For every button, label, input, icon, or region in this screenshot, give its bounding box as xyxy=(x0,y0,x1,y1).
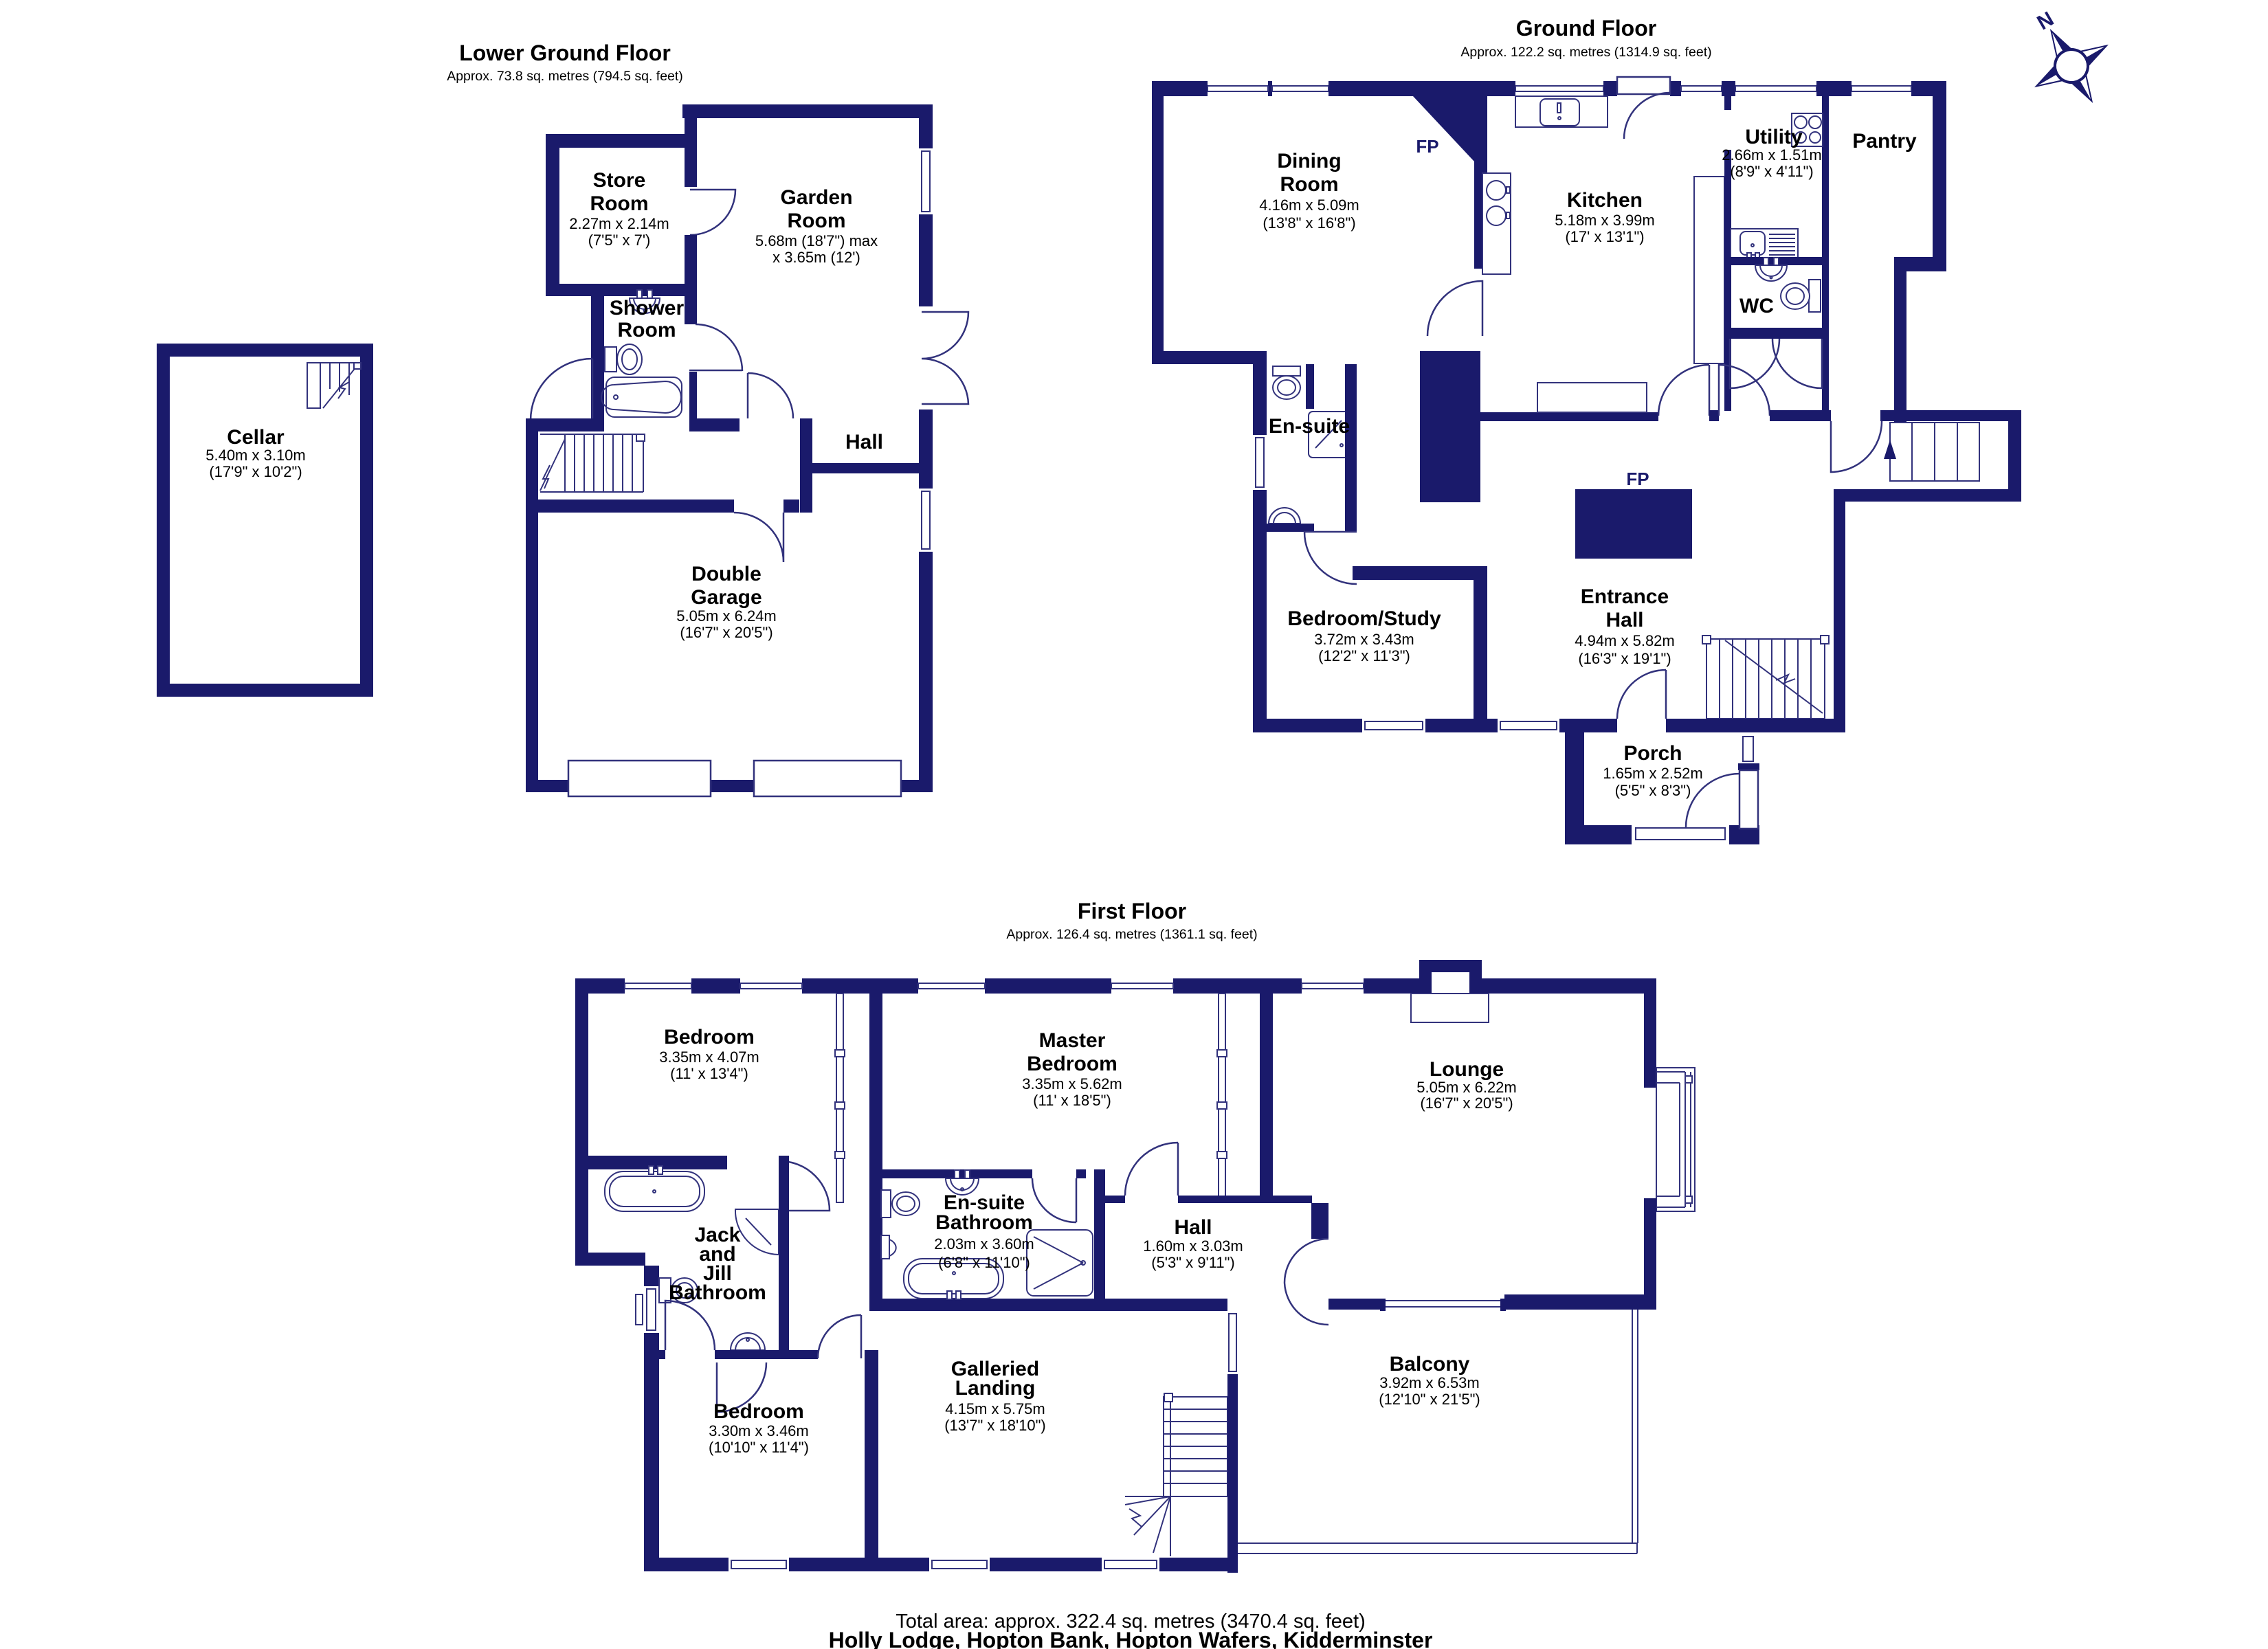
svg-text:Balcony: Balcony xyxy=(1390,1353,1470,1376)
svg-text:(13'8" x 16'8"): (13'8" x 16'8") xyxy=(1263,214,1355,232)
svg-text:5.40m x 3.10m: 5.40m x 3.10m xyxy=(205,447,306,464)
svg-text:5.68m (18'7") max: 5.68m (18'7") max xyxy=(755,232,878,249)
svg-text:2.66m x 1.51m: 2.66m x 1.51m xyxy=(1722,146,1822,164)
svg-text:Cellar: Cellar xyxy=(227,426,285,449)
svg-text:Bathroom: Bathroom xyxy=(669,1281,766,1304)
svg-text:4.16m x 5.09m: 4.16m x 5.09m xyxy=(1259,197,1359,214)
svg-text:5.05m x 6.22m: 5.05m x 6.22m xyxy=(1416,1079,1517,1096)
svg-text:Double: Double xyxy=(691,563,761,585)
svg-text:(12'10" x 21'5"): (12'10" x 21'5") xyxy=(1379,1391,1480,1408)
svg-text:Shower: Shower xyxy=(610,297,685,319)
svg-text:3.30m x 3.46m: 3.30m x 3.46m xyxy=(709,1422,809,1439)
svg-text:2.27m x 2.14m: 2.27m x 2.14m xyxy=(569,215,669,232)
svg-text:4.15m x 5.75m: 4.15m x 5.75m xyxy=(945,1400,1045,1417)
svg-text:(6'8" x 11'10"): (6'8" x 11'10") xyxy=(938,1254,1030,1271)
svg-text:Room: Room xyxy=(618,319,676,341)
svg-text:Landing: Landing xyxy=(955,1377,1036,1400)
svg-text:3.92m x 6.53m: 3.92m x 6.53m xyxy=(1379,1374,1480,1391)
svg-text:(17' x 13'1"): (17' x 13'1") xyxy=(1565,228,1644,245)
svg-text:1.60m x 3.03m: 1.60m x 3.03m xyxy=(1143,1237,1243,1255)
svg-text:(5'3" x 9'11"): (5'3" x 9'11") xyxy=(1151,1254,1234,1271)
svg-text:FP: FP xyxy=(1416,136,1438,157)
svg-text:3.35m x 5.62m: 3.35m x 5.62m xyxy=(1022,1075,1122,1092)
svg-text:2.03m x 3.60m: 2.03m x 3.60m xyxy=(934,1235,1034,1253)
svg-text:Ground Floor: Ground Floor xyxy=(1516,16,1656,41)
svg-text:Dining: Dining xyxy=(1277,150,1341,172)
svg-text:En-suite: En-suite xyxy=(1269,415,1350,438)
svg-text:Room: Room xyxy=(1280,173,1339,196)
svg-text:FP: FP xyxy=(1626,469,1649,489)
svg-text:Room: Room xyxy=(590,192,649,215)
svg-text:Garage: Garage xyxy=(691,586,761,609)
svg-text:3.35m x 4.07m: 3.35m x 4.07m xyxy=(659,1048,759,1066)
svg-text:5.05m x 6.24m: 5.05m x 6.24m xyxy=(676,607,777,625)
svg-text:(7'5" x 7'): (7'5" x 7') xyxy=(588,232,651,249)
svg-text:Porch: Porch xyxy=(1623,742,1682,765)
svg-text:Approx. 122.2 sq. metres (1314: Approx. 122.2 sq. metres (1314.9 sq. fee… xyxy=(1460,45,1711,60)
svg-text:(17'9" x 10'2"): (17'9" x 10'2") xyxy=(209,463,302,480)
svg-text:(8'9" x 4'11"): (8'9" x 4'11") xyxy=(1730,163,1813,180)
svg-text:Hall: Hall xyxy=(1174,1216,1212,1239)
svg-text:Approx. 126.4 sq. metres (1361: Approx. 126.4 sq. metres (1361.1 sq. fee… xyxy=(1006,927,1257,942)
svg-text:Kitchen: Kitchen xyxy=(1567,189,1643,212)
svg-text:4.94m x 5.82m: 4.94m x 5.82m xyxy=(1575,632,1675,649)
svg-text:Bedroom: Bedroom xyxy=(713,1400,804,1423)
svg-text:(11' x 13'4"): (11' x 13'4") xyxy=(670,1065,748,1082)
svg-text:Garden: Garden xyxy=(780,186,852,209)
svg-text:First Floor: First Floor xyxy=(1078,899,1186,923)
svg-text:Entrance: Entrance xyxy=(1581,585,1669,608)
svg-text:Pantry: Pantry xyxy=(1852,130,1917,153)
svg-text:Approx. 73.8 sq. metres (794.5: Approx. 73.8 sq. metres (794.5 sq. feet) xyxy=(447,69,683,84)
svg-text:(5'5" x 8'3"): (5'5" x 8'3") xyxy=(1615,782,1691,799)
svg-text:Bathroom: Bathroom xyxy=(935,1211,1033,1234)
svg-text:3.72m x 3.43m: 3.72m x 3.43m xyxy=(1314,631,1414,648)
svg-text:Bedroom/Study: Bedroom/Study xyxy=(1287,607,1441,630)
svg-text:x 3.65m (12'): x 3.65m (12') xyxy=(772,249,860,266)
svg-text:(11' x 18'5"): (11' x 18'5") xyxy=(1033,1092,1111,1109)
svg-text:Hall: Hall xyxy=(845,431,883,453)
svg-text:Master: Master xyxy=(1039,1029,1106,1052)
svg-text:Room: Room xyxy=(788,210,846,232)
svg-text:(13'7" x 18'10"): (13'7" x 18'10") xyxy=(944,1417,1046,1434)
svg-text:Lounge: Lounge xyxy=(1430,1058,1504,1081)
svg-text:(12'2" x 11'3"): (12'2" x 11'3") xyxy=(1318,647,1410,664)
svg-text:1.65m x 2.52m: 1.65m x 2.52m xyxy=(1603,765,1703,782)
svg-text:(16'3" x 19'1"): (16'3" x 19'1") xyxy=(1578,650,1671,667)
svg-text:WC: WC xyxy=(1739,295,1774,317)
svg-text:Utility: Utility xyxy=(1745,126,1803,148)
svg-text:Store: Store xyxy=(593,169,646,192)
svg-text:Bedroom: Bedroom xyxy=(664,1026,755,1048)
svg-text:Holly Lodge, Hopton Bank, Hopt: Holly Lodge, Hopton Bank, Hopton Wafers,… xyxy=(829,1628,1433,1649)
svg-text:Bedroom: Bedroom xyxy=(1027,1053,1118,1075)
svg-text:Hall: Hall xyxy=(1605,609,1643,631)
svg-text:(10'10" x 11'4"): (10'10" x 11'4") xyxy=(709,1439,809,1456)
svg-text:(16'7" x 20'5"): (16'7" x 20'5") xyxy=(1420,1095,1513,1112)
svg-text:Lower Ground Floor: Lower Ground Floor xyxy=(459,41,671,65)
svg-text:5.18m x 3.99m: 5.18m x 3.99m xyxy=(1555,212,1655,229)
svg-text:(16'7" x 20'5"): (16'7" x 20'5") xyxy=(680,624,772,641)
